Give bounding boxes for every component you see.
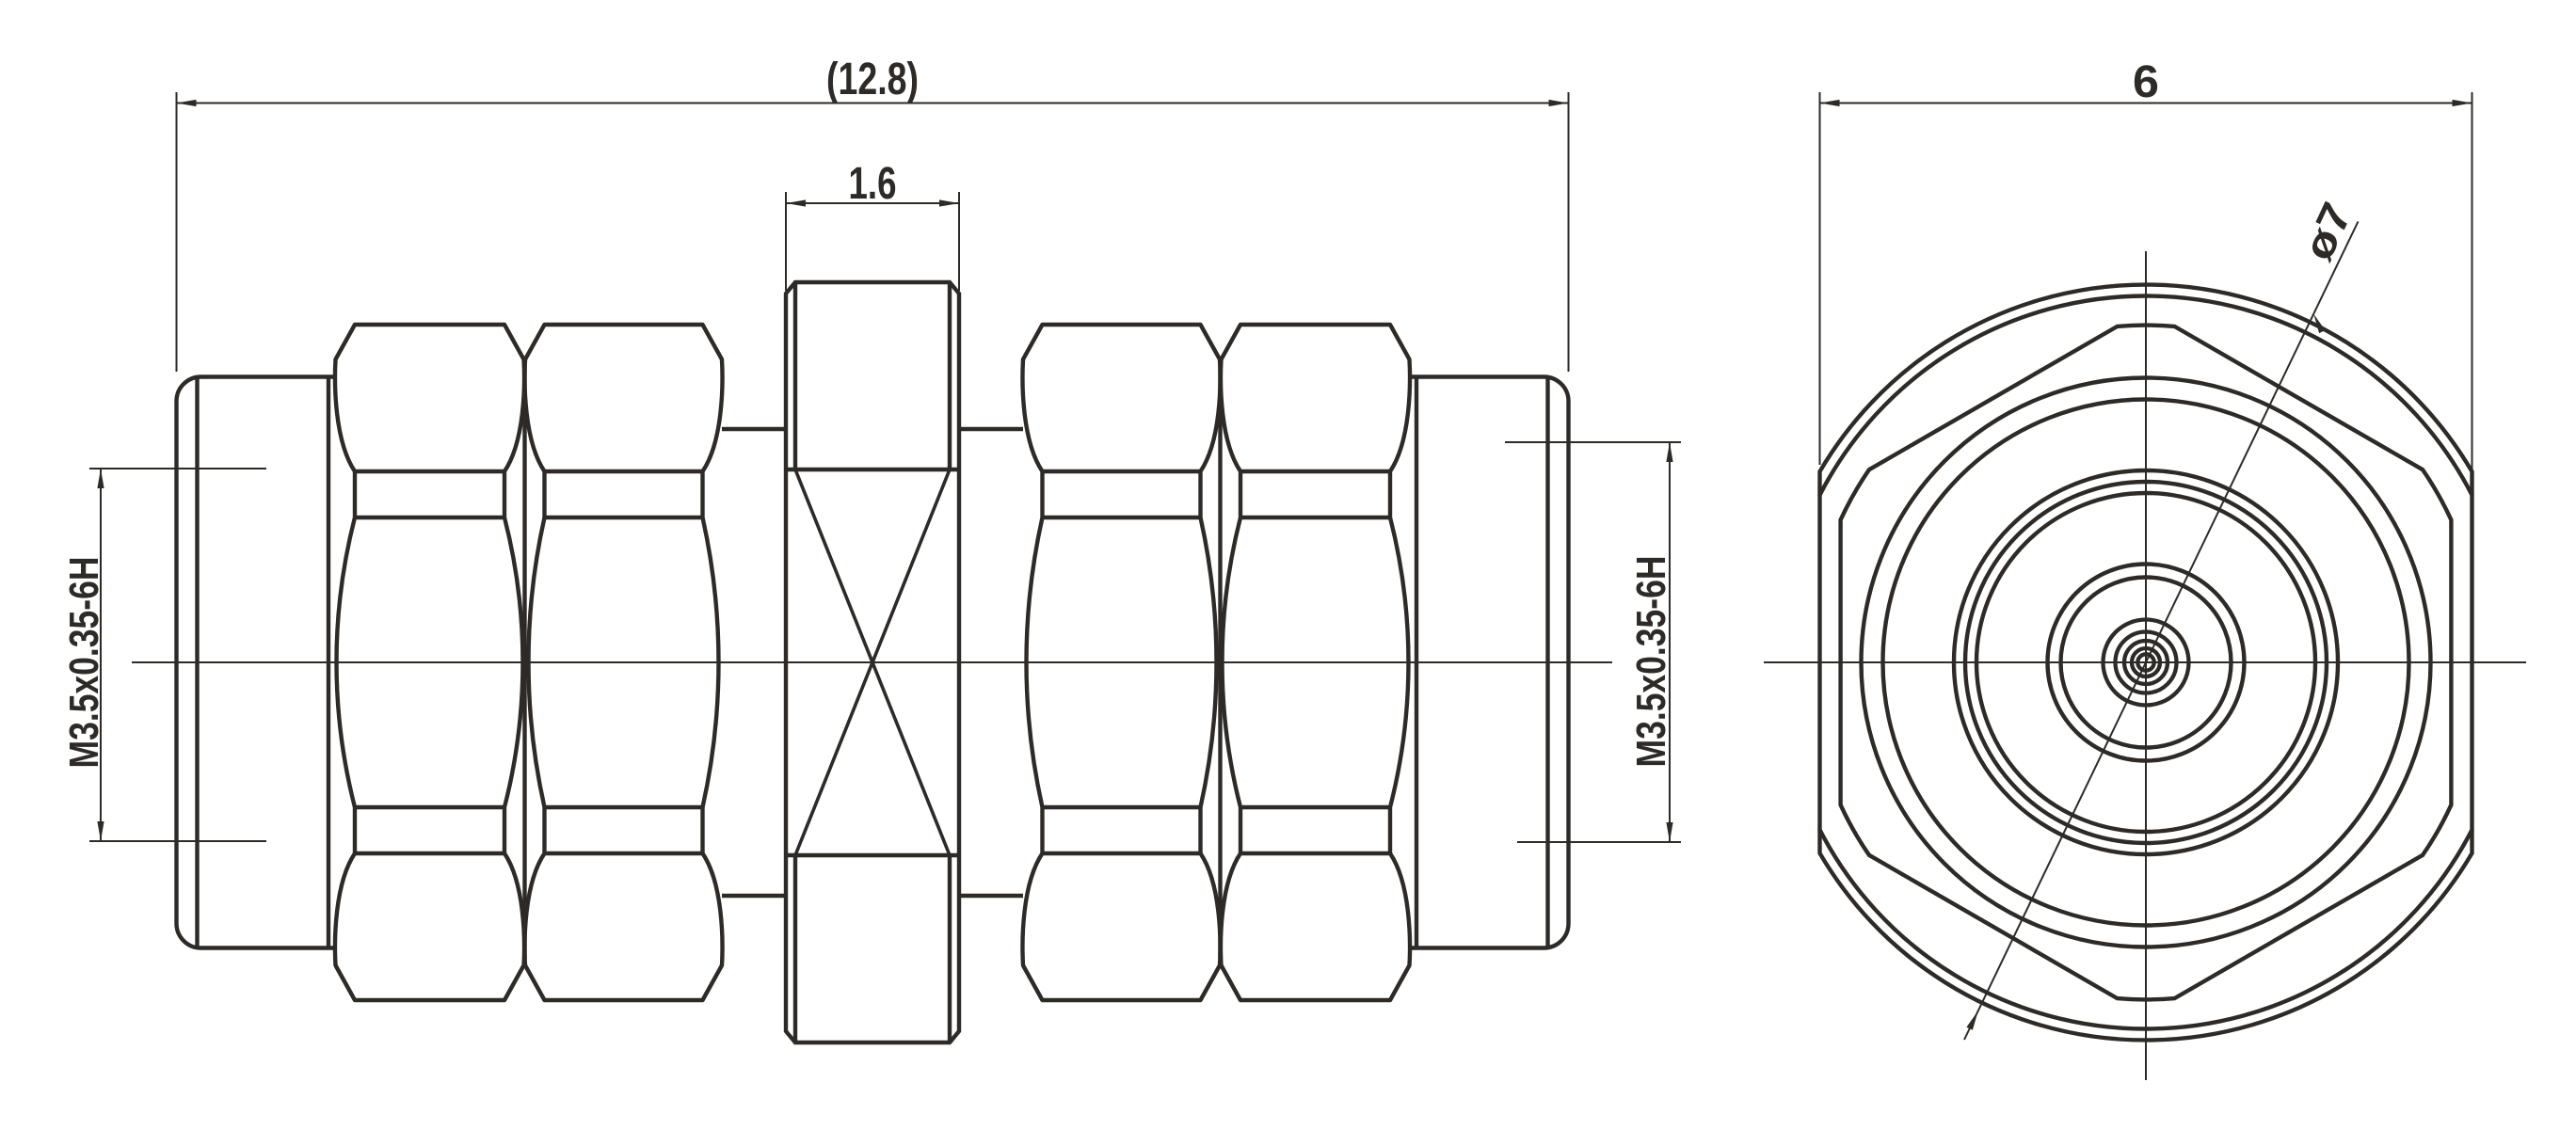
svg-text:6: 6 [2133,57,2159,107]
svg-text:M3.5x0.35-6H: M3.5x0.35-6H [61,557,107,769]
svg-text:1.6: 1.6 [849,159,897,209]
svg-text:M3.5x0.35-6H: M3.5x0.35-6H [1628,556,1674,768]
svg-text:ø7: ø7 [2294,195,2361,267]
svg-text:(12.8): (12.8) [826,55,919,104]
